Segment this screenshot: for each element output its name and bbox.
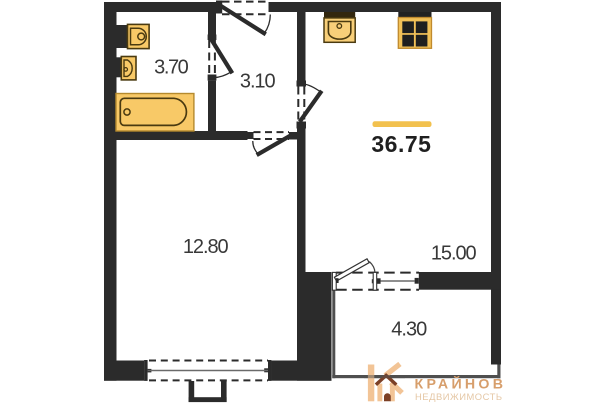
svg-text:3.70: 3.70 <box>154 57 189 79</box>
svg-text:4.30: 4.30 <box>391 318 427 340</box>
svg-text:НЕДВИЖИМОСТЬ: НЕДВИЖИМОСТЬ <box>415 391 502 402</box>
svg-text:15.00: 15.00 <box>431 242 477 264</box>
svg-text:12.80: 12.80 <box>183 236 229 258</box>
svg-text:36.75: 36.75 <box>371 131 431 157</box>
svg-text:3.10: 3.10 <box>240 71 276 93</box>
